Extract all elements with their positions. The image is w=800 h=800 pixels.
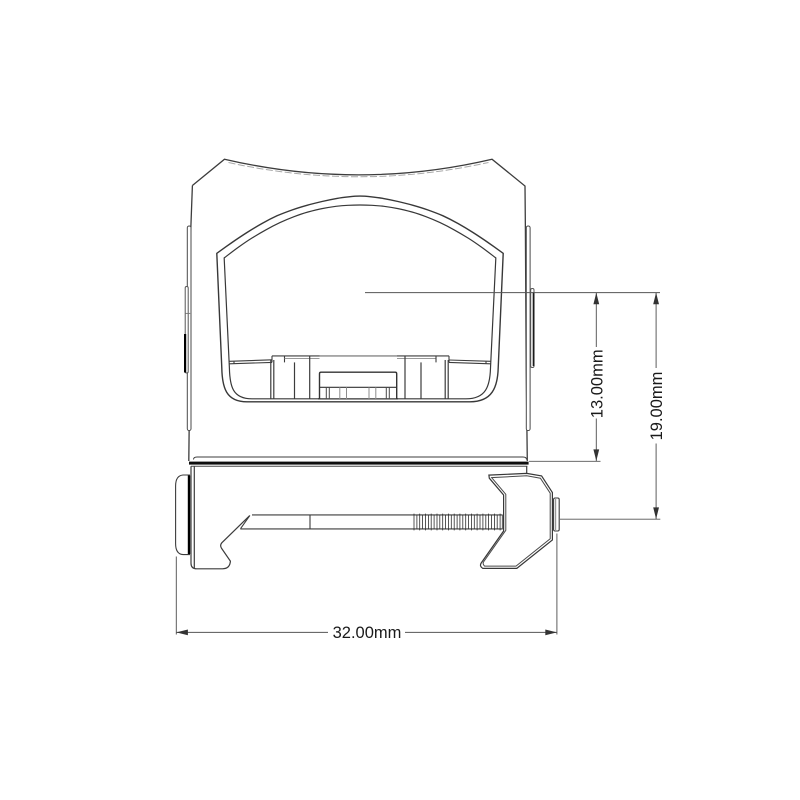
svg-text:13.00mm: 13.00mm: [588, 349, 606, 418]
svg-text:19.00mm: 19.00mm: [648, 372, 666, 441]
svg-text:32.00mm: 32.00mm: [333, 624, 402, 642]
